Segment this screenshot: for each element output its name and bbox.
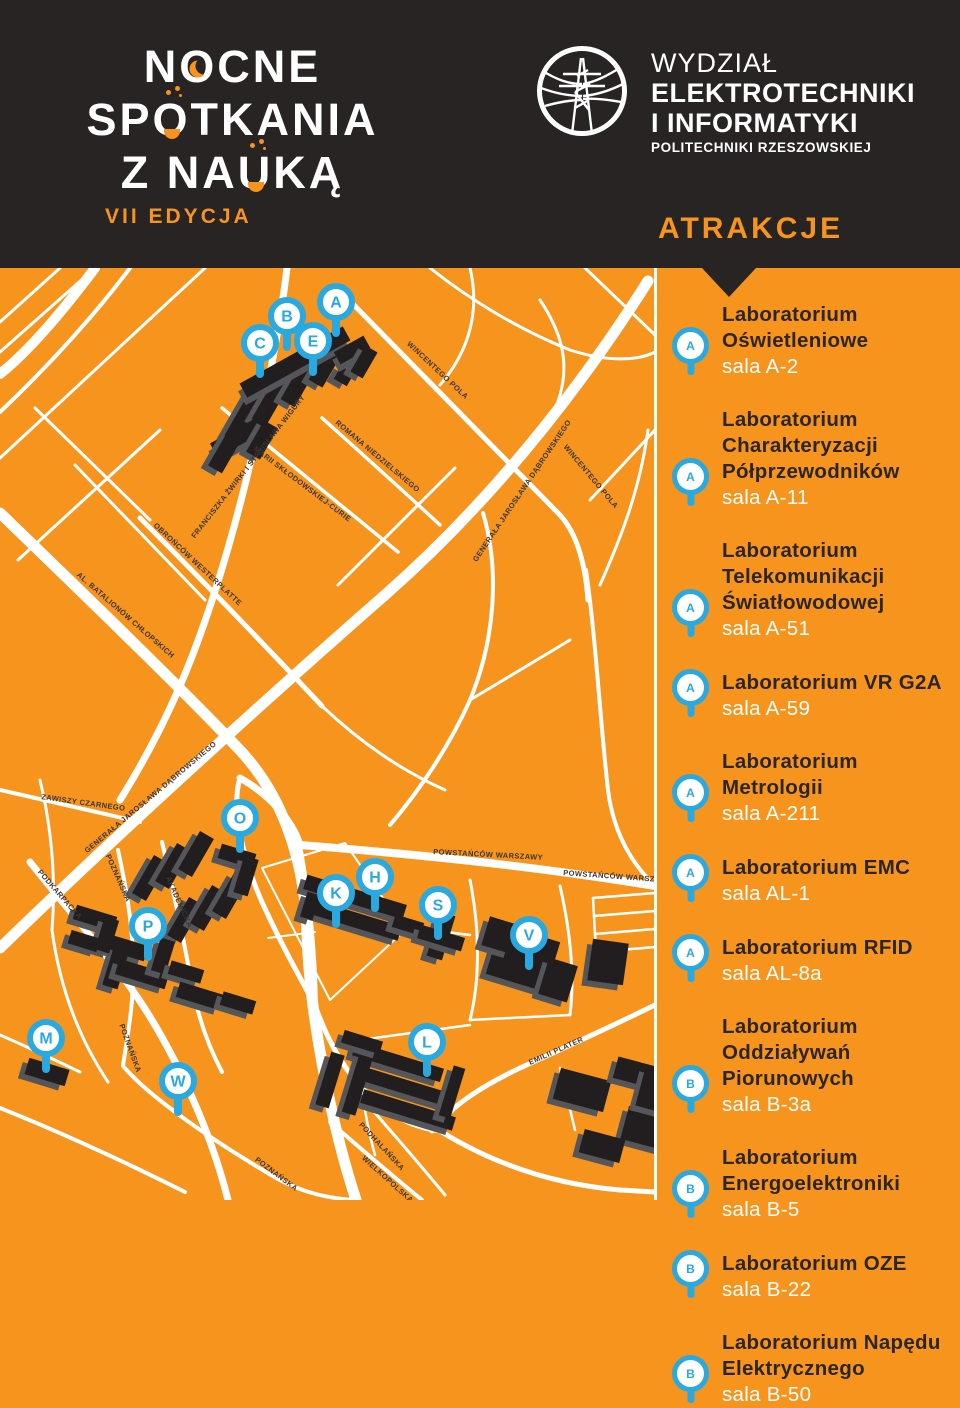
svg-text:S: S (433, 898, 444, 915)
attraction-title: Laboratorium Charakteryzacji Półprzewodn… (722, 407, 950, 485)
svg-text:B: B (281, 309, 293, 326)
faculty-logo: WYDZIAŁ ELEKTROTECHNIKI I INFORMATYKI PO… (535, 44, 915, 158)
building-pin-icon: B (672, 1170, 709, 1207)
building-pin-icon: A (672, 327, 709, 364)
svg-text:M: M (39, 1031, 52, 1048)
attractions-list: A Laboratorium Oświetleniowe sala A-2 A … (655, 268, 960, 1200)
faculty-name: WYDZIAŁ ELEKTROTECHNIKI I INFORMATYKI PO… (651, 44, 915, 158)
attraction-list-item: A Laboratorium Telekomunikacji Światłowo… (672, 538, 950, 642)
attraction-list-item: B Laboratorium Energoelektroniki sala B-… (672, 1145, 950, 1223)
attraction-text: Laboratorium Energoelektroniki sala B-5 (722, 1145, 950, 1223)
event-logo-line3: Z NAUKĄ (55, 146, 410, 199)
attraction-list-item: B Laboratorium Oddziaływań Piorunowych s… (672, 1014, 950, 1118)
attraction-text: Laboratorium Napędu Elektrycznego sala B… (722, 1330, 950, 1408)
attraction-title: Laboratorium OZE (722, 1251, 950, 1277)
attraction-text: Laboratorium Telekomunikacji Światłowodo… (722, 538, 950, 642)
event-logo-line2: SPOTKANIA (55, 93, 410, 146)
svg-text:W: W (170, 1074, 186, 1091)
attraction-title: Laboratorium Energoelektroniki (722, 1145, 950, 1197)
attraction-title: Laboratorium Napędu Elektrycznego (722, 1330, 950, 1382)
attraction-list-item: B Laboratorium Napędu Elektrycznego sala… (672, 1330, 950, 1408)
event-map-poster: FRANCISZKA ŻWIRKI I STANISŁAWA WIGURYMAR… (0, 0, 960, 1200)
building-pin-icon: A (672, 934, 709, 971)
attraction-room: sala A-11 (722, 485, 950, 511)
attraction-text: Laboratorium Charakteryzacji Półprzewodn… (722, 407, 950, 511)
flask-icon: O (153, 93, 191, 146)
attraction-room: sala A-2 (722, 354, 950, 380)
attraction-room: sala B-3a (722, 1092, 950, 1118)
attraction-list-item: A Laboratorium Oświetleniowe sala A-2 (672, 302, 950, 380)
svg-text:O: O (234, 811, 246, 828)
building-pin-icon: A (672, 854, 709, 891)
attraction-room: sala AL-1 (722, 881, 950, 907)
attraction-text: Laboratorium OZE sala B-22 (722, 1251, 950, 1303)
event-logo-line1: NOCNE (55, 40, 410, 93)
attraction-list-item: A Laboratorium EMC sala AL-1 (672, 854, 950, 907)
attractions-pointer-arrow (702, 268, 756, 297)
moon-icon: O (179, 40, 217, 93)
faculty-line3: I INFORMATYKI (651, 108, 915, 138)
attractions-heading: ATRAKCJE (658, 212, 843, 246)
svg-text:L: L (422, 1035, 432, 1052)
attraction-title: Laboratorium EMC (722, 855, 950, 881)
building-pin-icon: B (672, 1065, 709, 1102)
attraction-room: sala A-59 (722, 696, 950, 722)
svg-text:E: E (308, 334, 319, 351)
attraction-title: Laboratorium Metrologii (722, 749, 950, 801)
attraction-room: sala B-5 (722, 1197, 950, 1223)
faculty-line4: POLITECHNIKI RZESZOWSKIEJ (651, 138, 915, 158)
attraction-list-item: A Laboratorium Metrologii sala A-211 (672, 749, 950, 827)
building-pin-icon: B (672, 1355, 709, 1392)
attraction-text: Laboratorium EMC sala AL-1 (722, 855, 950, 907)
attraction-room: sala B-50 (722, 1382, 950, 1408)
campus-map: FRANCISZKA ŻWIRKI I STANISŁAWA WIGURYMAR… (0, 268, 655, 1200)
faculty-line2: ELEKTROTECHNIKI (651, 78, 915, 108)
building-pin-icon: A (672, 458, 709, 495)
pylon-emblem-icon (535, 44, 629, 138)
attraction-title: Laboratorium Oddziaływań Piorunowych (722, 1014, 950, 1092)
attraction-text: Laboratorium Metrologii sala A-211 (722, 749, 950, 827)
svg-text:K: K (330, 886, 342, 903)
svg-text:A: A (330, 295, 342, 312)
attraction-title: Laboratorium VR G2A (722, 670, 950, 696)
attraction-list-item: B Laboratorium OZE sala B-22 (672, 1250, 950, 1303)
attraction-text: Laboratorium Oświetleniowe sala A-2 (722, 302, 950, 380)
attraction-list-item: A Laboratorium RFID sala AL-8a (672, 934, 950, 987)
attraction-title: Laboratorium RFID (722, 935, 950, 961)
attraction-room: sala A-51 (722, 616, 950, 642)
attraction-room: sala B-22 (722, 1277, 950, 1303)
flask-icon: U (238, 146, 274, 199)
map-canvas: FRANCISZKA ŻWIRKI I STANISŁAWA WIGURYMAR… (0, 268, 655, 1200)
attraction-room: sala A-211 (722, 801, 950, 827)
attraction-text: Laboratorium RFID sala AL-8a (722, 935, 950, 987)
building-pin-icon: A (672, 589, 709, 626)
svg-text:V: V (524, 928, 535, 945)
event-logo: NOCNE SPOTKANIA Z NAUKĄ VII EDYCJA (55, 40, 410, 229)
svg-text:C: C (254, 336, 266, 353)
attraction-title: Laboratorium Oświetleniowe (722, 302, 950, 354)
svg-text:H: H (369, 870, 381, 887)
event-edition: VII EDYCJA (55, 205, 410, 229)
attraction-room: sala AL-8a (722, 961, 950, 987)
building-pin-icon: B (672, 1250, 709, 1287)
svg-text:P: P (143, 919, 154, 936)
building-pin-icon: A (672, 669, 709, 706)
building-pin-icon: A (672, 774, 709, 811)
attraction-list-item: A Laboratorium VR G2A sala A-59 (672, 669, 950, 722)
attraction-title: Laboratorium Telekomunikacji Światłowodo… (722, 538, 950, 616)
attraction-list-item: A Laboratorium Charakteryzacji Półprzewo… (672, 407, 950, 511)
attraction-text: Laboratorium Oddziaływań Piorunowych sal… (722, 1014, 950, 1118)
header-bar: NOCNE SPOTKANIA Z NAUKĄ VII EDYCJA WYDZI (0, 0, 960, 268)
attraction-text: Laboratorium VR G2A sala A-59 (722, 670, 950, 722)
faculty-line1: WYDZIAŁ (651, 48, 915, 78)
